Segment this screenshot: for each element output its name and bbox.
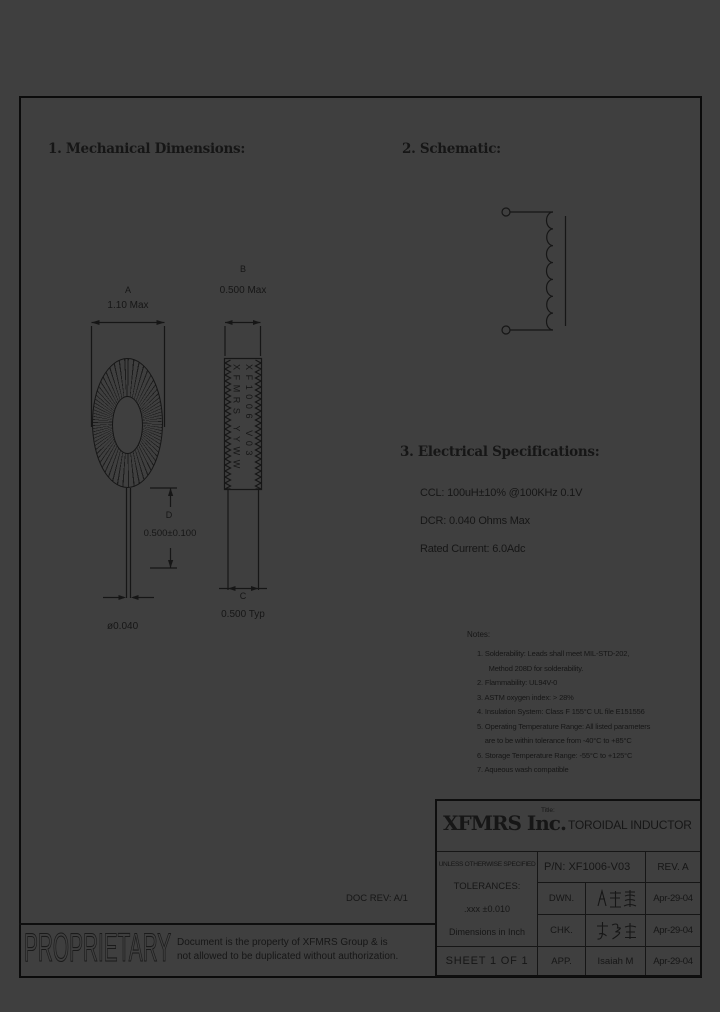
chk-date: Apr-29-04	[646, 915, 700, 947]
chk-signature	[594, 919, 638, 943]
title-block: XFMRS Inc. Title: TOROIDAL INDUCTOR UNLE…	[435, 799, 702, 977]
note-item: 6. Storage Temperature Range: -55°C to +…	[477, 749, 650, 764]
lead-diameter-label: ø0.040	[107, 621, 138, 632]
spec-dcr: DCR: 0.040 Ohms Max	[420, 515, 530, 527]
dim-d-letter: D	[149, 510, 189, 520]
sheet-number: SHEET 1 OF 1	[437, 947, 538, 975]
proprietary-text-line1: Document is the property of XFMRS Group …	[177, 936, 398, 950]
tolerance-note-2: TOLERANCES:	[437, 881, 537, 892]
tolerances-cell: UNLESS OTHERWISE SPECIFIED TOLERANCES: .…	[437, 852, 538, 947]
spec-ccl: CCL: 100uH±10% @100KHz 0.1V	[420, 487, 582, 499]
revision: REV. A	[646, 852, 700, 883]
app-date: Apr-29-04	[646, 947, 700, 975]
toroid-center-hole	[112, 396, 143, 454]
note-item: 7. Aqueous wash compatible	[477, 763, 650, 778]
title-row: XFMRS Inc. Title: TOROIDAL INDUCTOR	[437, 801, 700, 852]
company-name: XFMRS Inc.	[443, 811, 566, 835]
title-label: Title:	[541, 807, 555, 814]
dwn-label: DWN.	[538, 883, 586, 915]
part-number-cell: P/N: XF1006-V03	[538, 852, 646, 883]
app-label: APP.	[538, 947, 586, 975]
note-item: 3. ASTM oxygen index: > 28%	[477, 691, 650, 706]
tolerance-note-1: UNLESS OTHERWISE SPECIFIED	[437, 861, 537, 868]
dim-a-value: 1.10 Max	[91, 300, 165, 311]
notes-heading: Notes:	[467, 630, 490, 639]
proprietary-text: Document is the property of XFMRS Group …	[177, 936, 398, 963]
note-item: 4. Insulation System: Class F 155°C UL f…	[477, 705, 650, 720]
part-number: P/N: XF1006-V03	[538, 861, 630, 873]
spec-rated-current: Rated Current: 6.0Adc	[420, 543, 525, 555]
note-item: 1. Solderability: Leads shall meet MIL-S…	[477, 647, 650, 676]
app-signature: Isaiah M	[586, 947, 646, 975]
chk-label: CHK.	[538, 915, 586, 947]
tolerance-note-4: Dimensions in Inch	[437, 927, 537, 937]
dim-d-value: 0.500±0.100	[132, 528, 208, 539]
section-heading-electrical: 3. Electrical Specifications:	[400, 444, 599, 460]
dim-c-letter: C	[224, 591, 262, 601]
part-marking-text: XF1006 V03XFMRS YYWW	[230, 364, 255, 486]
dim-b-letter: B	[207, 264, 279, 274]
doc-title: TOROIDAL INDUCTOR	[568, 818, 692, 832]
section-heading-schematic: 2. Schematic:	[402, 141, 501, 157]
proprietary-word: PROPRIETARY	[24, 922, 171, 974]
dim-b-value: 0.500 Max	[207, 285, 279, 296]
dim-c-value: 0.500 Typ	[207, 609, 279, 620]
note-item: 2. Flammability: UL94V-0	[477, 676, 650, 691]
doc-rev: DOC REV: A/1	[346, 893, 408, 904]
notes-list: 1. Solderability: Leads shall meet MIL-S…	[477, 647, 650, 778]
dim-a-letter: A	[91, 285, 165, 295]
section-heading-mechanical: 1. Mechanical Dimensions:	[48, 141, 245, 157]
dwn-signature	[594, 887, 638, 911]
part-marking-col-right: XF1006 V03	[244, 364, 254, 460]
part-marking-col-left: XFMRS YYWW	[232, 364, 242, 473]
datasheet-page: 1. Mechanical Dimensions: 2. Schematic: …	[0, 0, 720, 1012]
proprietary-text-line2: not allowed to be duplicated without aut…	[177, 950, 398, 964]
dwn-date: Apr-29-04	[646, 883, 700, 915]
dwn-signature-cell	[586, 883, 646, 915]
tolerance-note-3: .xxx ±0.010	[437, 904, 537, 914]
chk-signature-cell	[586, 915, 646, 947]
proprietary-banner: PROPRIETARY Document is the property of …	[19, 923, 437, 978]
note-item: 5. Operating Temperature Range: All list…	[477, 720, 650, 749]
